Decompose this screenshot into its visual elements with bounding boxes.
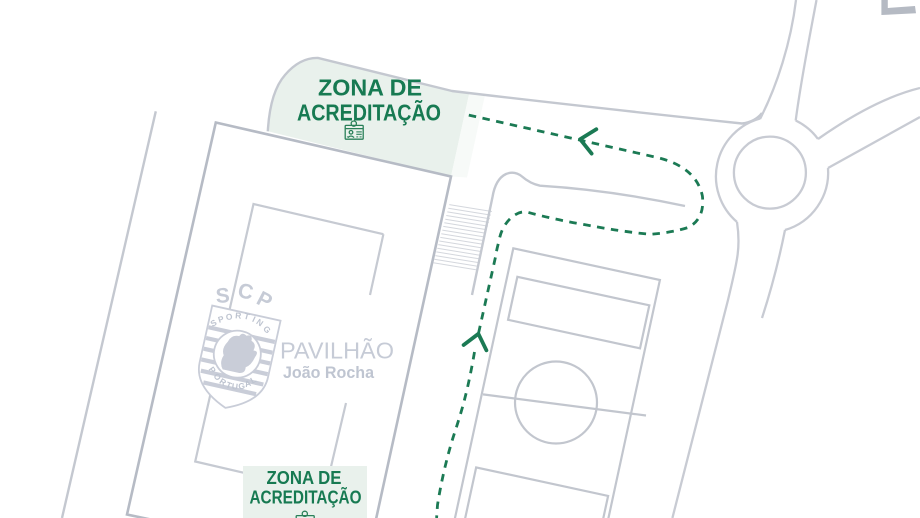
svg-text:ZONA DE: ZONA DE — [267, 467, 342, 488]
svg-text:João Rocha: João Rocha — [283, 363, 375, 382]
svg-text:PAVILHÃO: PAVILHÃO — [280, 338, 394, 364]
svg-text:ZONA DE: ZONA DE — [318, 75, 422, 101]
svg-text:S: S — [215, 284, 230, 308]
svg-text:R: R — [235, 310, 242, 320]
svg-text:ACREDITAÇÃO: ACREDITAÇÃO — [250, 487, 362, 508]
svg-text:ACREDITAÇÃO: ACREDITAÇÃO — [297, 99, 441, 126]
